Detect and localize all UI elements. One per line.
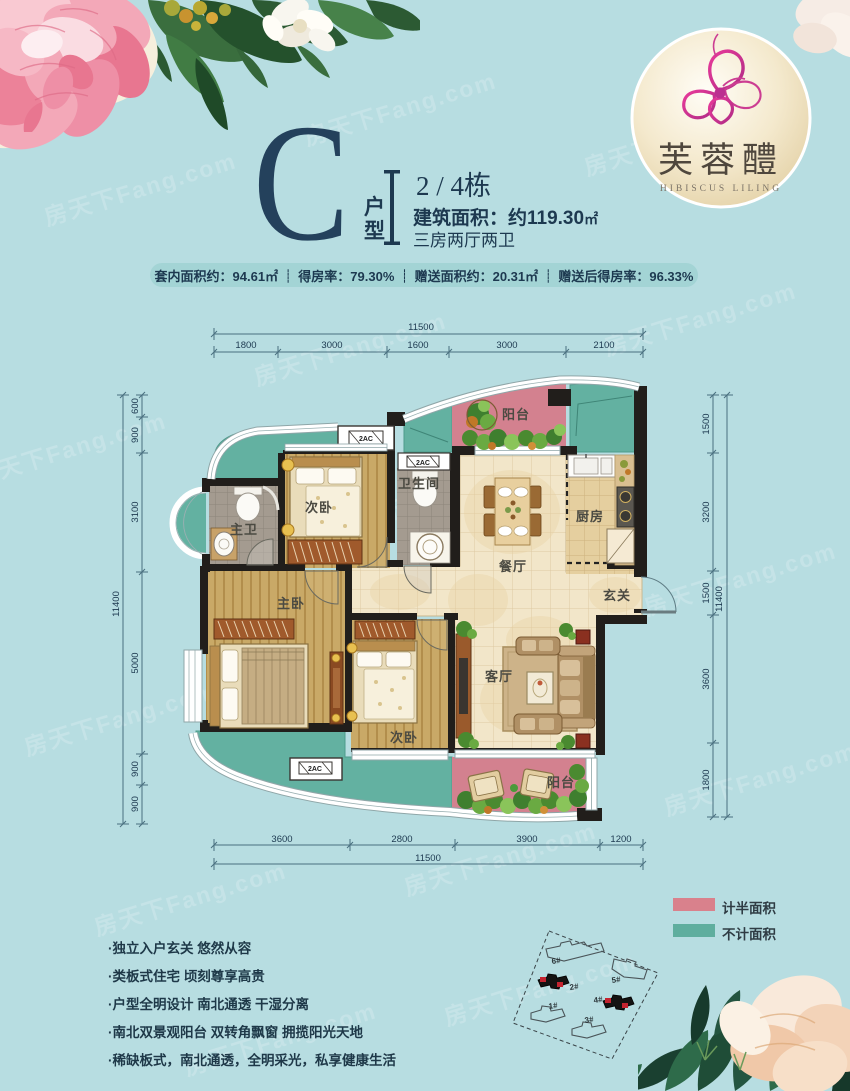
svg-text:玄关: 玄关 <box>603 588 631 603</box>
svg-text:3200: 3200 <box>701 501 712 522</box>
svg-text:11400: 11400 <box>111 591 122 617</box>
svg-text:3900: 3900 <box>516 834 537 845</box>
svg-text:3100: 3100 <box>130 501 141 522</box>
svg-text:11400: 11400 <box>714 586 725 612</box>
svg-text:1500: 1500 <box>701 413 712 434</box>
svg-text:餐厅: 餐厅 <box>498 559 527 574</box>
svg-text:1800: 1800 <box>701 769 712 790</box>
svg-text:5#: 5# <box>611 975 622 985</box>
svg-text:3#: 3# <box>584 1015 595 1025</box>
svg-text:主卧: 主卧 <box>277 596 305 611</box>
svg-text:3000: 3000 <box>496 340 517 351</box>
svg-text:4#: 4# <box>593 995 604 1005</box>
svg-text:2#: 2# <box>569 982 580 992</box>
svg-text:客厅: 客厅 <box>485 669 513 684</box>
svg-text:6#: 6# <box>551 956 562 966</box>
svg-text:900: 900 <box>130 796 141 812</box>
svg-text:3600: 3600 <box>271 834 292 845</box>
svg-text:1600: 1600 <box>407 340 428 351</box>
svg-text:2800: 2800 <box>391 834 412 845</box>
svg-text:1500: 1500 <box>701 582 712 603</box>
svg-text:卫生间: 卫生间 <box>398 476 440 491</box>
svg-text:1#: 1# <box>548 1001 559 1011</box>
svg-text:HIBISCUS LILING: HIBISCUS LILING <box>660 184 782 194</box>
svg-text:3000: 3000 <box>321 340 342 351</box>
svg-text:2AC: 2AC <box>308 766 322 773</box>
svg-text:5000: 5000 <box>130 652 141 673</box>
svg-text:900: 900 <box>130 761 141 777</box>
svg-text:1200: 1200 <box>610 834 631 845</box>
svg-text:阳台: 阳台 <box>502 407 530 422</box>
svg-text:2100: 2100 <box>593 340 614 351</box>
svg-text:厨房: 厨房 <box>576 509 604 524</box>
svg-text:900: 900 <box>130 427 141 443</box>
svg-text:芙蓉醴: 芙蓉醴 <box>658 141 784 180</box>
svg-text:1800: 1800 <box>235 340 256 351</box>
svg-text:2AC: 2AC <box>416 460 430 467</box>
svg-text:次卧: 次卧 <box>305 500 333 515</box>
svg-text:11500: 11500 <box>408 322 434 333</box>
svg-text:次卧: 次卧 <box>390 730 418 745</box>
svg-text:阳台: 阳台 <box>547 775 575 790</box>
svg-text:600: 600 <box>130 398 141 414</box>
svg-text:3600: 3600 <box>701 668 712 689</box>
svg-text:主卫: 主卫 <box>230 522 258 537</box>
svg-text:2AC: 2AC <box>359 436 373 443</box>
svg-text:11500: 11500 <box>415 853 441 864</box>
